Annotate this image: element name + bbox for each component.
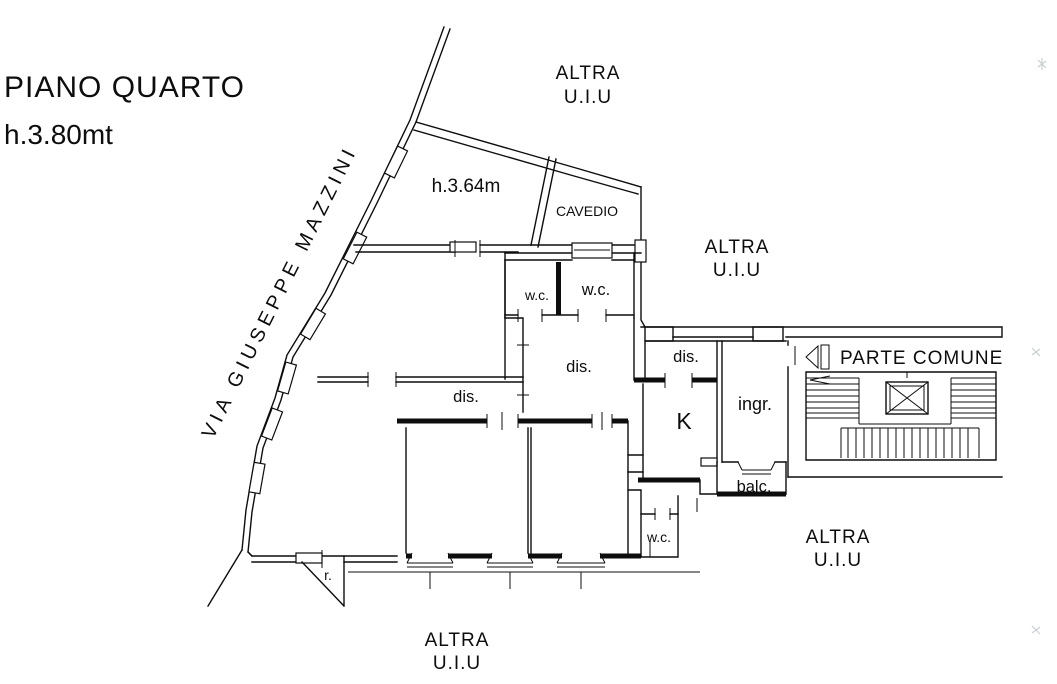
labels: PIANO QUARTO h.3.80mt VIA GIUSEPPE MAZZI…	[4, 63, 1003, 674]
room-dis-right-label: dis.	[673, 348, 699, 366]
floor-plan-drawing: PIANO QUARTO h.3.80mt VIA GIUSEPPE MAZZI…	[0, 0, 1057, 684]
svg-text:U.I.U: U.I.U	[713, 260, 761, 281]
parte-comune-label: PARTE COMUNE	[840, 348, 1003, 369]
door-threshold	[450, 242, 476, 252]
east-window	[635, 240, 646, 262]
svg-text:U.I.U: U.I.U	[433, 653, 481, 674]
lot-boundary-line	[208, 550, 242, 606]
door-swing-icon	[810, 376, 830, 384]
room-balcony-label: balc.	[737, 478, 772, 496]
entrance-kitchen-walls	[628, 341, 795, 494]
street-wall	[208, 27, 450, 606]
entry-door-icon	[806, 345, 829, 369]
wc-partition	[556, 262, 561, 315]
central-corridor-walls	[505, 260, 634, 412]
svg-text:U.I.U: U.I.U	[814, 550, 862, 571]
room-cavedio-label: CAVEDIO	[556, 203, 618, 219]
altra-uiu-top: ALTRA U.I.U	[556, 63, 621, 108]
room-dis-left-label: dis.	[453, 388, 479, 406]
svg-text:ALTRA: ALTRA	[705, 237, 770, 258]
wc-block-walls	[505, 243, 641, 322]
svg-text:ALTRA: ALTRA	[425, 630, 490, 651]
scan-artifact	[1032, 58, 1046, 634]
room-wc-bottom-label: w.c.	[646, 529, 671, 545]
room-storage-label: r.	[324, 567, 332, 583]
altra-uiu-right: ALTRA U.I.U	[705, 237, 770, 281]
room-attic-height-label: h.3.64m	[432, 176, 501, 197]
room-wc-top-left-label: w.c.	[524, 287, 549, 303]
elevator-icon	[886, 372, 928, 414]
page-height-note: h.3.80mt	[4, 119, 113, 150]
room-wc-top-right-label: w.c.	[581, 281, 610, 299]
lower-wc-walls	[628, 490, 697, 557]
room-kitchen-label: K	[676, 408, 692, 434]
altra-uiu-bottom: ALTRA U.I.U	[425, 630, 490, 674]
storage-corner-walls	[248, 550, 397, 606]
svg-text:U.I.U: U.I.U	[564, 87, 612, 108]
svg-text:ALTRA: ALTRA	[806, 527, 871, 548]
altra-uiu-bottom-right: ALTRA U.I.U	[806, 527, 871, 571]
floor-plan-page: PIANO QUARTO h.3.80mt VIA GIUSEPPE MAZZI…	[0, 0, 1057, 684]
page-title: PIANO QUARTO	[4, 71, 245, 104]
room-dis-center-label: dis.	[566, 358, 592, 376]
svg-text:ALTRA: ALTRA	[556, 63, 621, 84]
room-entrance-label: ingr.	[738, 394, 772, 414]
street-name-label: VIA GIUSEPPE MAZZINI	[198, 142, 362, 442]
